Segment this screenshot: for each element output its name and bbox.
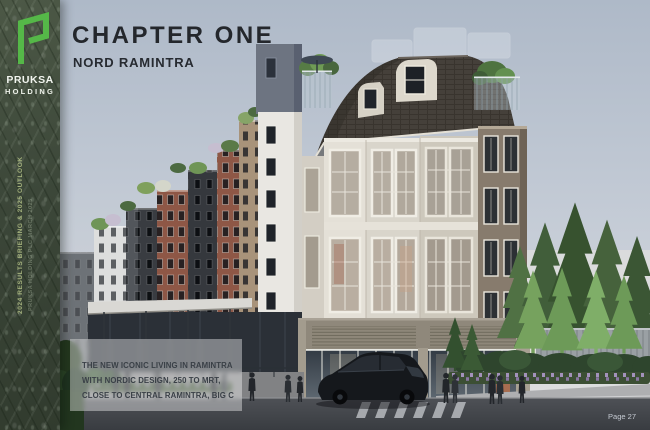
brand-name-line1: PRUKSA: [0, 74, 60, 86]
highlight-line-2: WITH NORDIC DESIGN, 250 TO MRT,: [82, 373, 242, 388]
highlight-line-3: CLOSE TO CENTRAL RAMINTRA, BIG C: [82, 388, 242, 403]
brand-sidebar: PRUKSA HOLDING 2024 RESULTS BRIEFING & 2…: [0, 0, 60, 430]
brand-name-line2: HOLDING: [0, 87, 60, 96]
project-highlight-panel: THE NEW ICONIC LIVING IN RAMINTRA WITH N…: [70, 339, 242, 411]
project-subtitle: NORD RAMINTRA: [73, 55, 195, 70]
chapter-title: CHAPTER ONE: [72, 22, 274, 50]
highlight-line-1: THE NEW ICONIC LIVING IN RAMINTRA: [82, 358, 242, 373]
sidebar-vertical-text: 2024 RESULTS BRIEFING & 2025 OUTLOOK: [17, 162, 24, 314]
sidebar-vertical-text-secondary: PRUKSA HOLDING PLC MARCH 2025: [28, 165, 34, 311]
pruksa-logo-icon: [10, 12, 54, 68]
slide-canvas: PRUKSA HOLDING 2024 RESULTS BRIEFING & 2…: [0, 0, 650, 430]
page-number-label: Page 27: [608, 412, 636, 421]
